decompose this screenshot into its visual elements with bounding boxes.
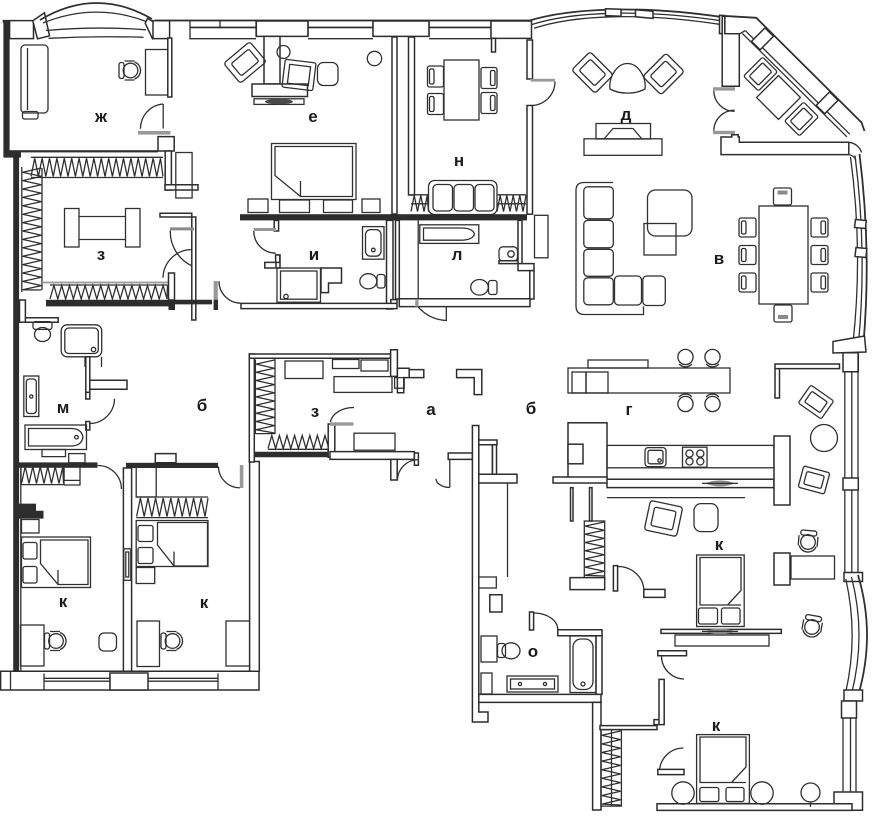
svg-text:н: н (454, 151, 464, 170)
svg-text:м: м (57, 398, 70, 417)
svg-text:б: б (526, 399, 537, 418)
svg-text:к: к (712, 716, 721, 735)
svg-text:в: в (714, 249, 724, 268)
svg-text:а: а (426, 400, 436, 419)
svg-text:з: з (311, 402, 319, 421)
svg-text:е: е (308, 107, 317, 126)
svg-text:л: л (452, 245, 463, 264)
svg-text:б: б (197, 396, 208, 415)
svg-text:о: о (528, 642, 538, 661)
svg-text:к: к (715, 535, 724, 554)
svg-text:з: з (97, 245, 105, 264)
svg-text:к: к (200, 593, 209, 612)
svg-text:г: г (625, 400, 632, 419)
svg-text:ж: ж (94, 107, 108, 126)
svg-text:к: к (59, 592, 68, 611)
svg-text:и: и (309, 245, 319, 264)
svg-text:д: д (621, 105, 632, 124)
